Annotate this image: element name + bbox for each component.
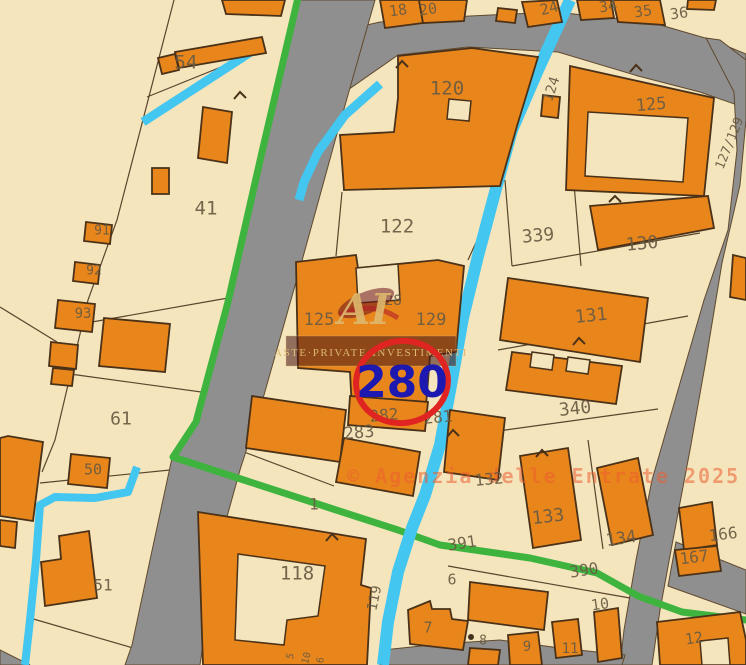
parcel-label-93: 93 bbox=[75, 306, 92, 322]
parcel-label-122: 122 bbox=[380, 216, 414, 238]
parcel-label-6: 6 bbox=[447, 570, 456, 588]
parcel-label-118: 118 bbox=[280, 563, 314, 585]
parcel-label-34: 34 bbox=[598, 0, 618, 16]
parcel-label-131: 131 bbox=[574, 304, 609, 328]
parcel-label-35: 35 bbox=[633, 1, 653, 21]
parcel-label-1: 1 bbox=[309, 495, 319, 514]
parcel-label-61: 61 bbox=[110, 408, 132, 429]
parcel-label-20: 20 bbox=[418, 0, 438, 19]
parcel-label-133: 133 bbox=[531, 504, 566, 529]
parcel-label-11: 11 bbox=[562, 641, 579, 657]
parcel-label-166: 166 bbox=[708, 523, 739, 545]
parcel-label-283: 283 bbox=[343, 422, 375, 445]
parcel-label-125: 125 bbox=[304, 310, 335, 330]
parcel-label-7: 7 bbox=[423, 618, 432, 636]
parcel-label-8: 8 bbox=[479, 634, 487, 649]
parcel-label-51: 51 bbox=[93, 576, 112, 595]
parcel-label-132: 132 bbox=[474, 468, 504, 489]
parcel-label-92: 92 bbox=[86, 264, 102, 279]
parcel-label-340: 340 bbox=[558, 397, 593, 421]
parcel-label-12: 12 bbox=[684, 628, 704, 648]
parcel-label-50: 50 bbox=[84, 460, 102, 478]
parcel-label-167: 167 bbox=[679, 546, 710, 568]
parcel-label-41: 41 bbox=[195, 198, 218, 220]
parcel-label-10: 10 bbox=[590, 594, 610, 614]
parcel-label-130: 130 bbox=[625, 232, 659, 256]
parcel-label-91: 91 bbox=[94, 224, 110, 239]
parcel-label-9: 9 bbox=[523, 639, 531, 655]
parcel-label-125: 125 bbox=[635, 94, 667, 117]
highlight-parcel-number: 280 bbox=[356, 357, 448, 408]
parcel-label-339: 339 bbox=[521, 224, 555, 248]
parcel-label-54: 54 bbox=[175, 52, 198, 74]
map-canvas: © Agenzia delle Entrate 2025 54419192936… bbox=[0, 0, 746, 665]
point-marker bbox=[468, 634, 474, 640]
cadastral-map[interactable]: © Agenzia delle Entrate 2025 54419192936… bbox=[0, 0, 746, 665]
parcel-label-120: 120 bbox=[430, 78, 464, 100]
parcel-label-129: 129 bbox=[416, 310, 447, 330]
parcel-label-134: 134 bbox=[605, 527, 638, 551]
watermark-monogram: AI bbox=[334, 285, 392, 334]
parcel-label-18: 18 bbox=[388, 0, 408, 20]
parcel-label-36: 36 bbox=[669, 3, 689, 23]
copyright-watermark: © Agenzia delle Entrate 2025 bbox=[347, 464, 740, 488]
